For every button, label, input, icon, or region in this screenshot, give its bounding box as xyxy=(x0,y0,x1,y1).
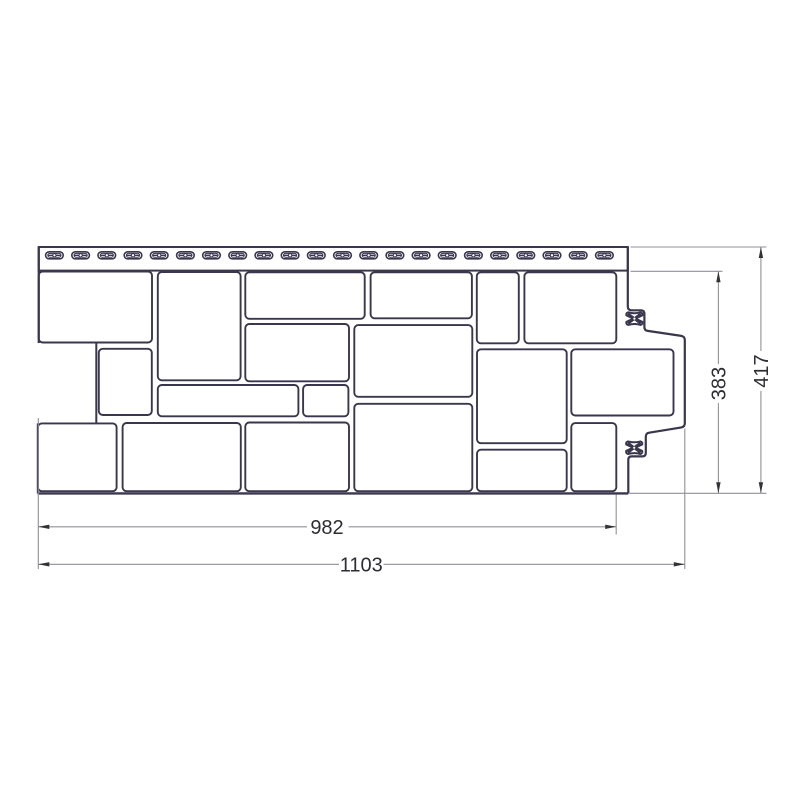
svg-text:1103: 1103 xyxy=(340,555,383,577)
svg-text:383: 383 xyxy=(708,367,730,400)
svg-text:982: 982 xyxy=(310,517,343,539)
svg-text:417: 417 xyxy=(751,354,773,387)
